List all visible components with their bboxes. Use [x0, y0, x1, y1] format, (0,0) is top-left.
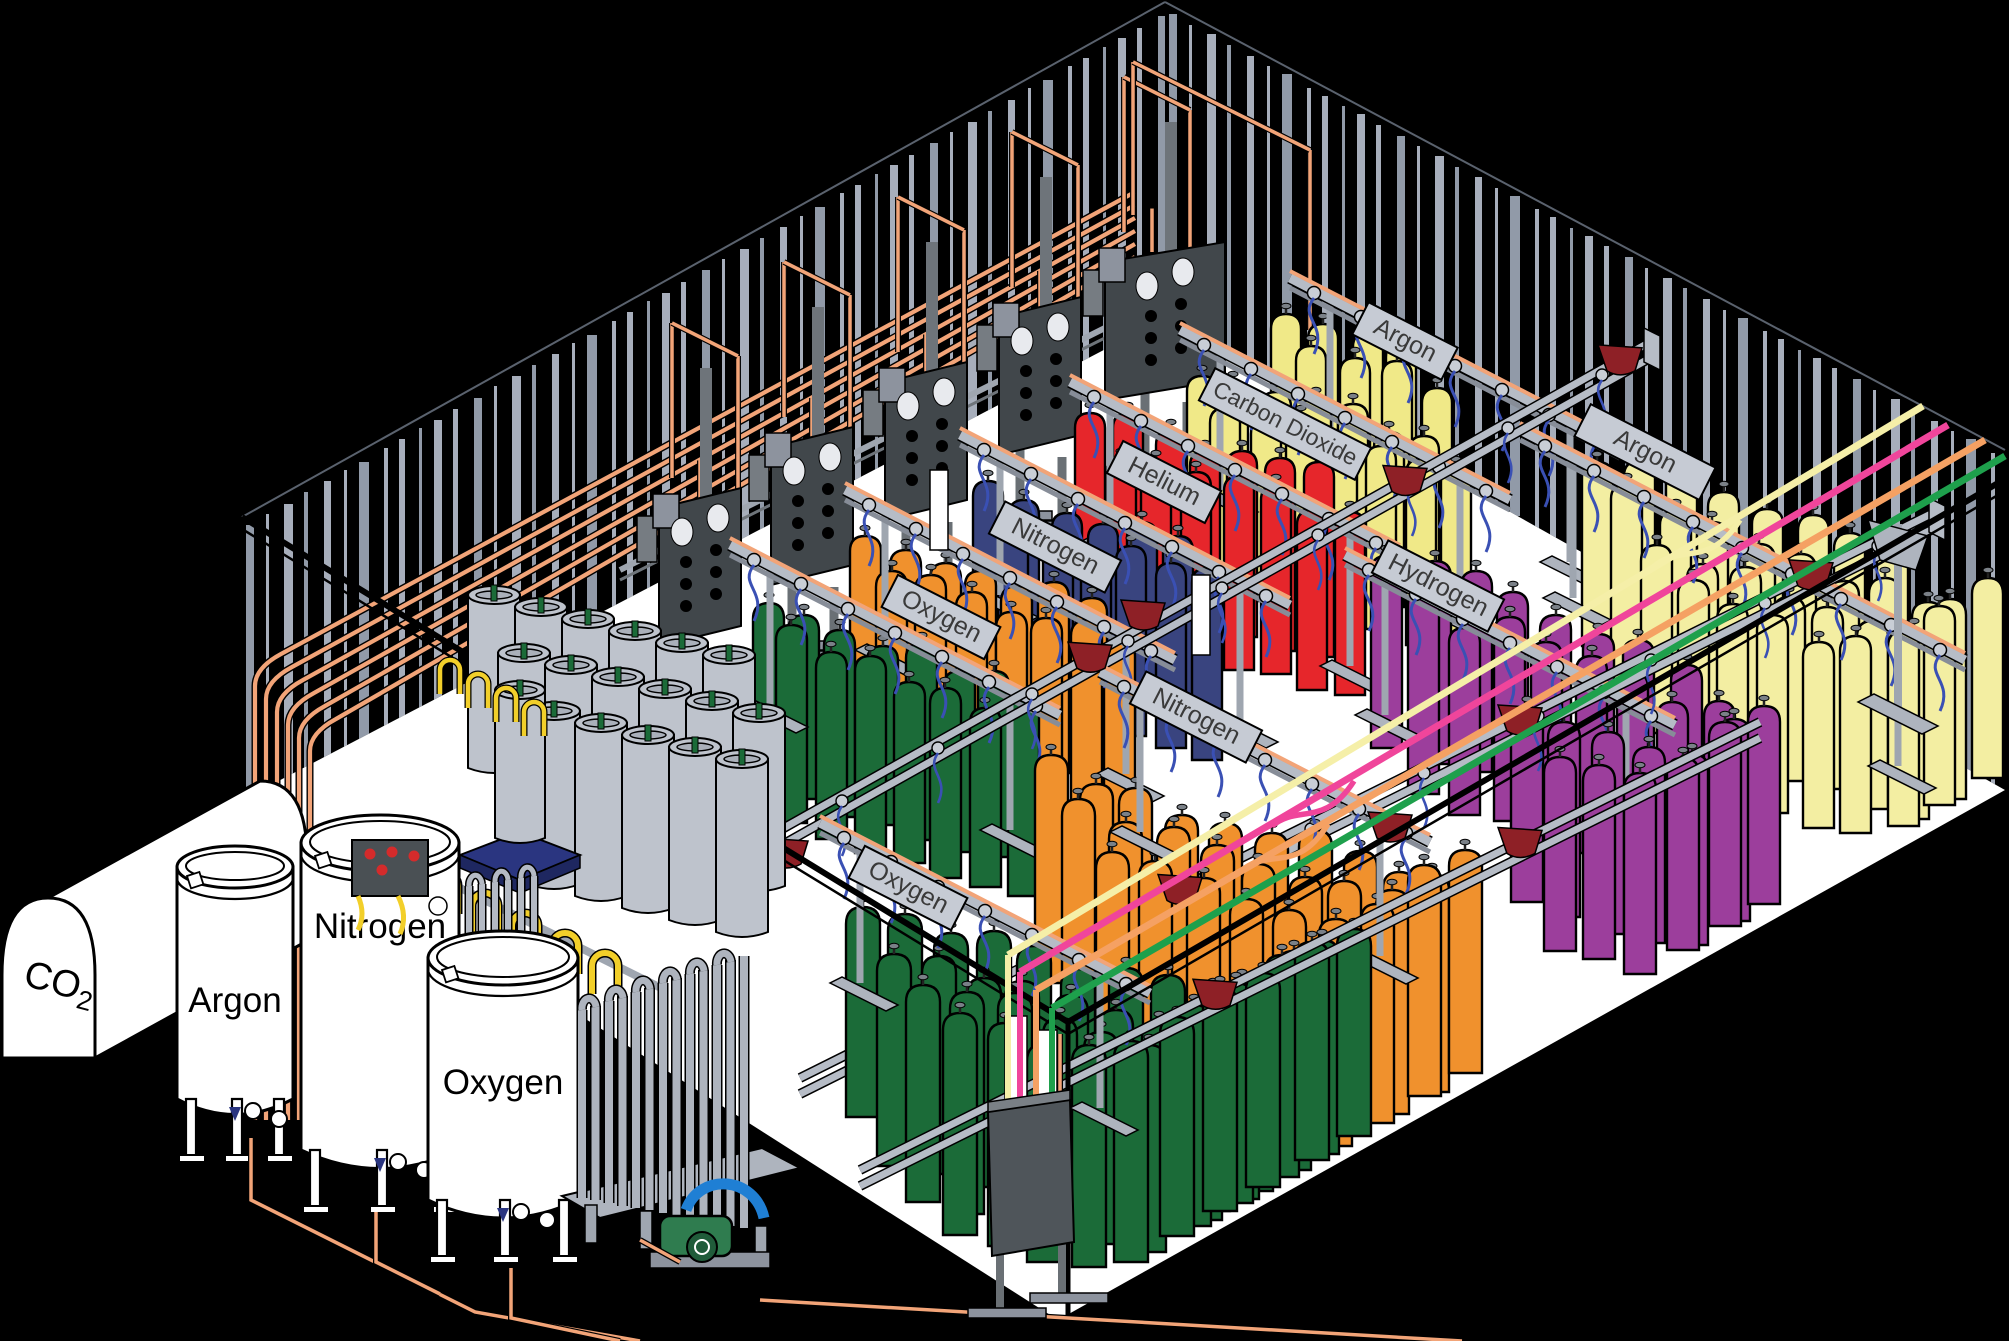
svg-text:Argon: Argon: [188, 981, 281, 1020]
svg-text:Oxygen: Oxygen: [443, 1063, 564, 1102]
svg-text:Nitrogen: Nitrogen: [314, 907, 446, 946]
